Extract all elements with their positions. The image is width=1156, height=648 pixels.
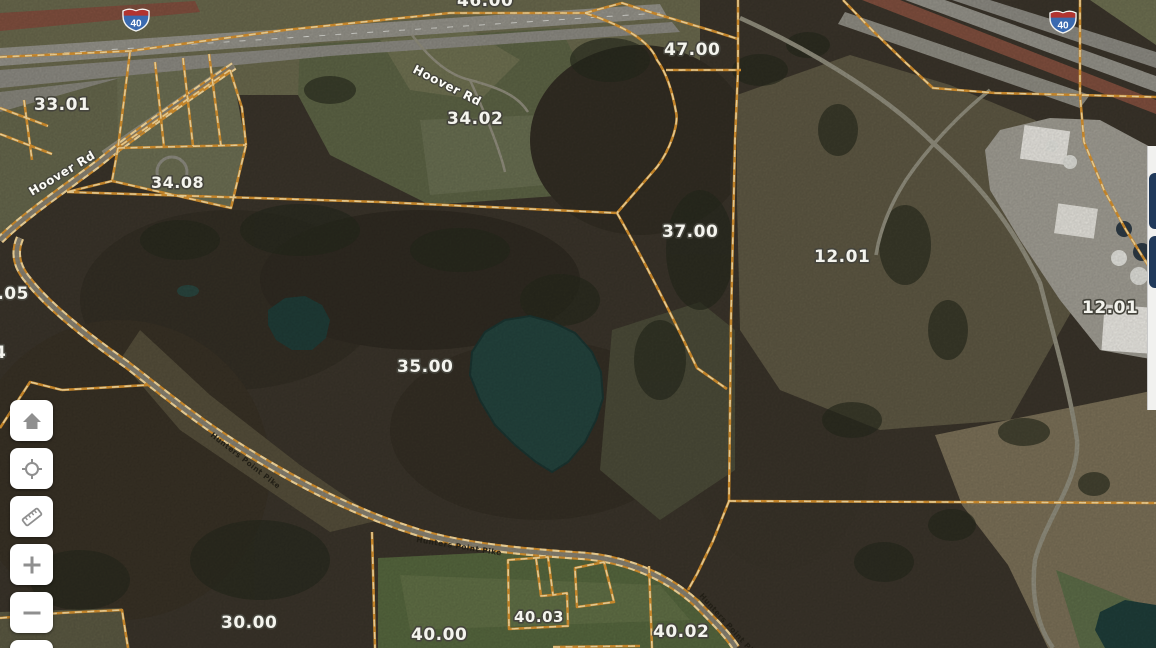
- parcel-label: 34.02: [447, 109, 503, 129]
- right-panel-edge: [1147, 146, 1156, 410]
- shield-number: 40: [130, 19, 142, 30]
- shield-number: 40: [1057, 21, 1069, 32]
- parcel-label: 47.00: [664, 40, 720, 60]
- minus-icon: [20, 601, 44, 625]
- parcel-label: 4.05: [0, 284, 29, 304]
- parcel-label: 40.02: [653, 622, 709, 642]
- home-icon: [20, 409, 44, 433]
- locate-button[interactable]: [10, 448, 53, 489]
- panel-button-1[interactable]: [1149, 173, 1156, 229]
- more-button[interactable]: [10, 640, 53, 648]
- parcel-label: 34.08: [151, 173, 204, 192]
- locate-icon: [20, 457, 44, 481]
- map-canvas[interactable]: 33.0134.0834.0247.0037.0012.0112.0135.00…: [0, 0, 1156, 648]
- map-viewer: 33.0134.0834.0247.0037.0012.0112.0135.00…: [0, 0, 1156, 648]
- ruler-icon: [20, 505, 44, 529]
- panel-button-2[interactable]: [1149, 236, 1156, 288]
- parcel-label: 4: [0, 343, 6, 363]
- parcel-label: 40.00: [411, 625, 467, 645]
- parcel-label: 40.03: [514, 608, 564, 626]
- measure-button[interactable]: [10, 496, 53, 537]
- parcel-label: 35.00: [397, 357, 453, 377]
- zoom-in-button[interactable]: [10, 544, 53, 585]
- photo-grain: [0, 0, 1156, 648]
- parcel-label: 33.01: [34, 95, 90, 115]
- plus-icon: [20, 553, 44, 577]
- parcel-label: 12.01: [814, 247, 870, 267]
- parcel-label: 37.00: [662, 222, 718, 242]
- home-button[interactable]: [10, 400, 53, 441]
- parcel-label: 30.00: [221, 613, 277, 633]
- parcel-label: 12.01: [1082, 298, 1138, 318]
- zoom-out-button[interactable]: [10, 592, 53, 633]
- parcel-label: 46.00: [457, 0, 513, 11]
